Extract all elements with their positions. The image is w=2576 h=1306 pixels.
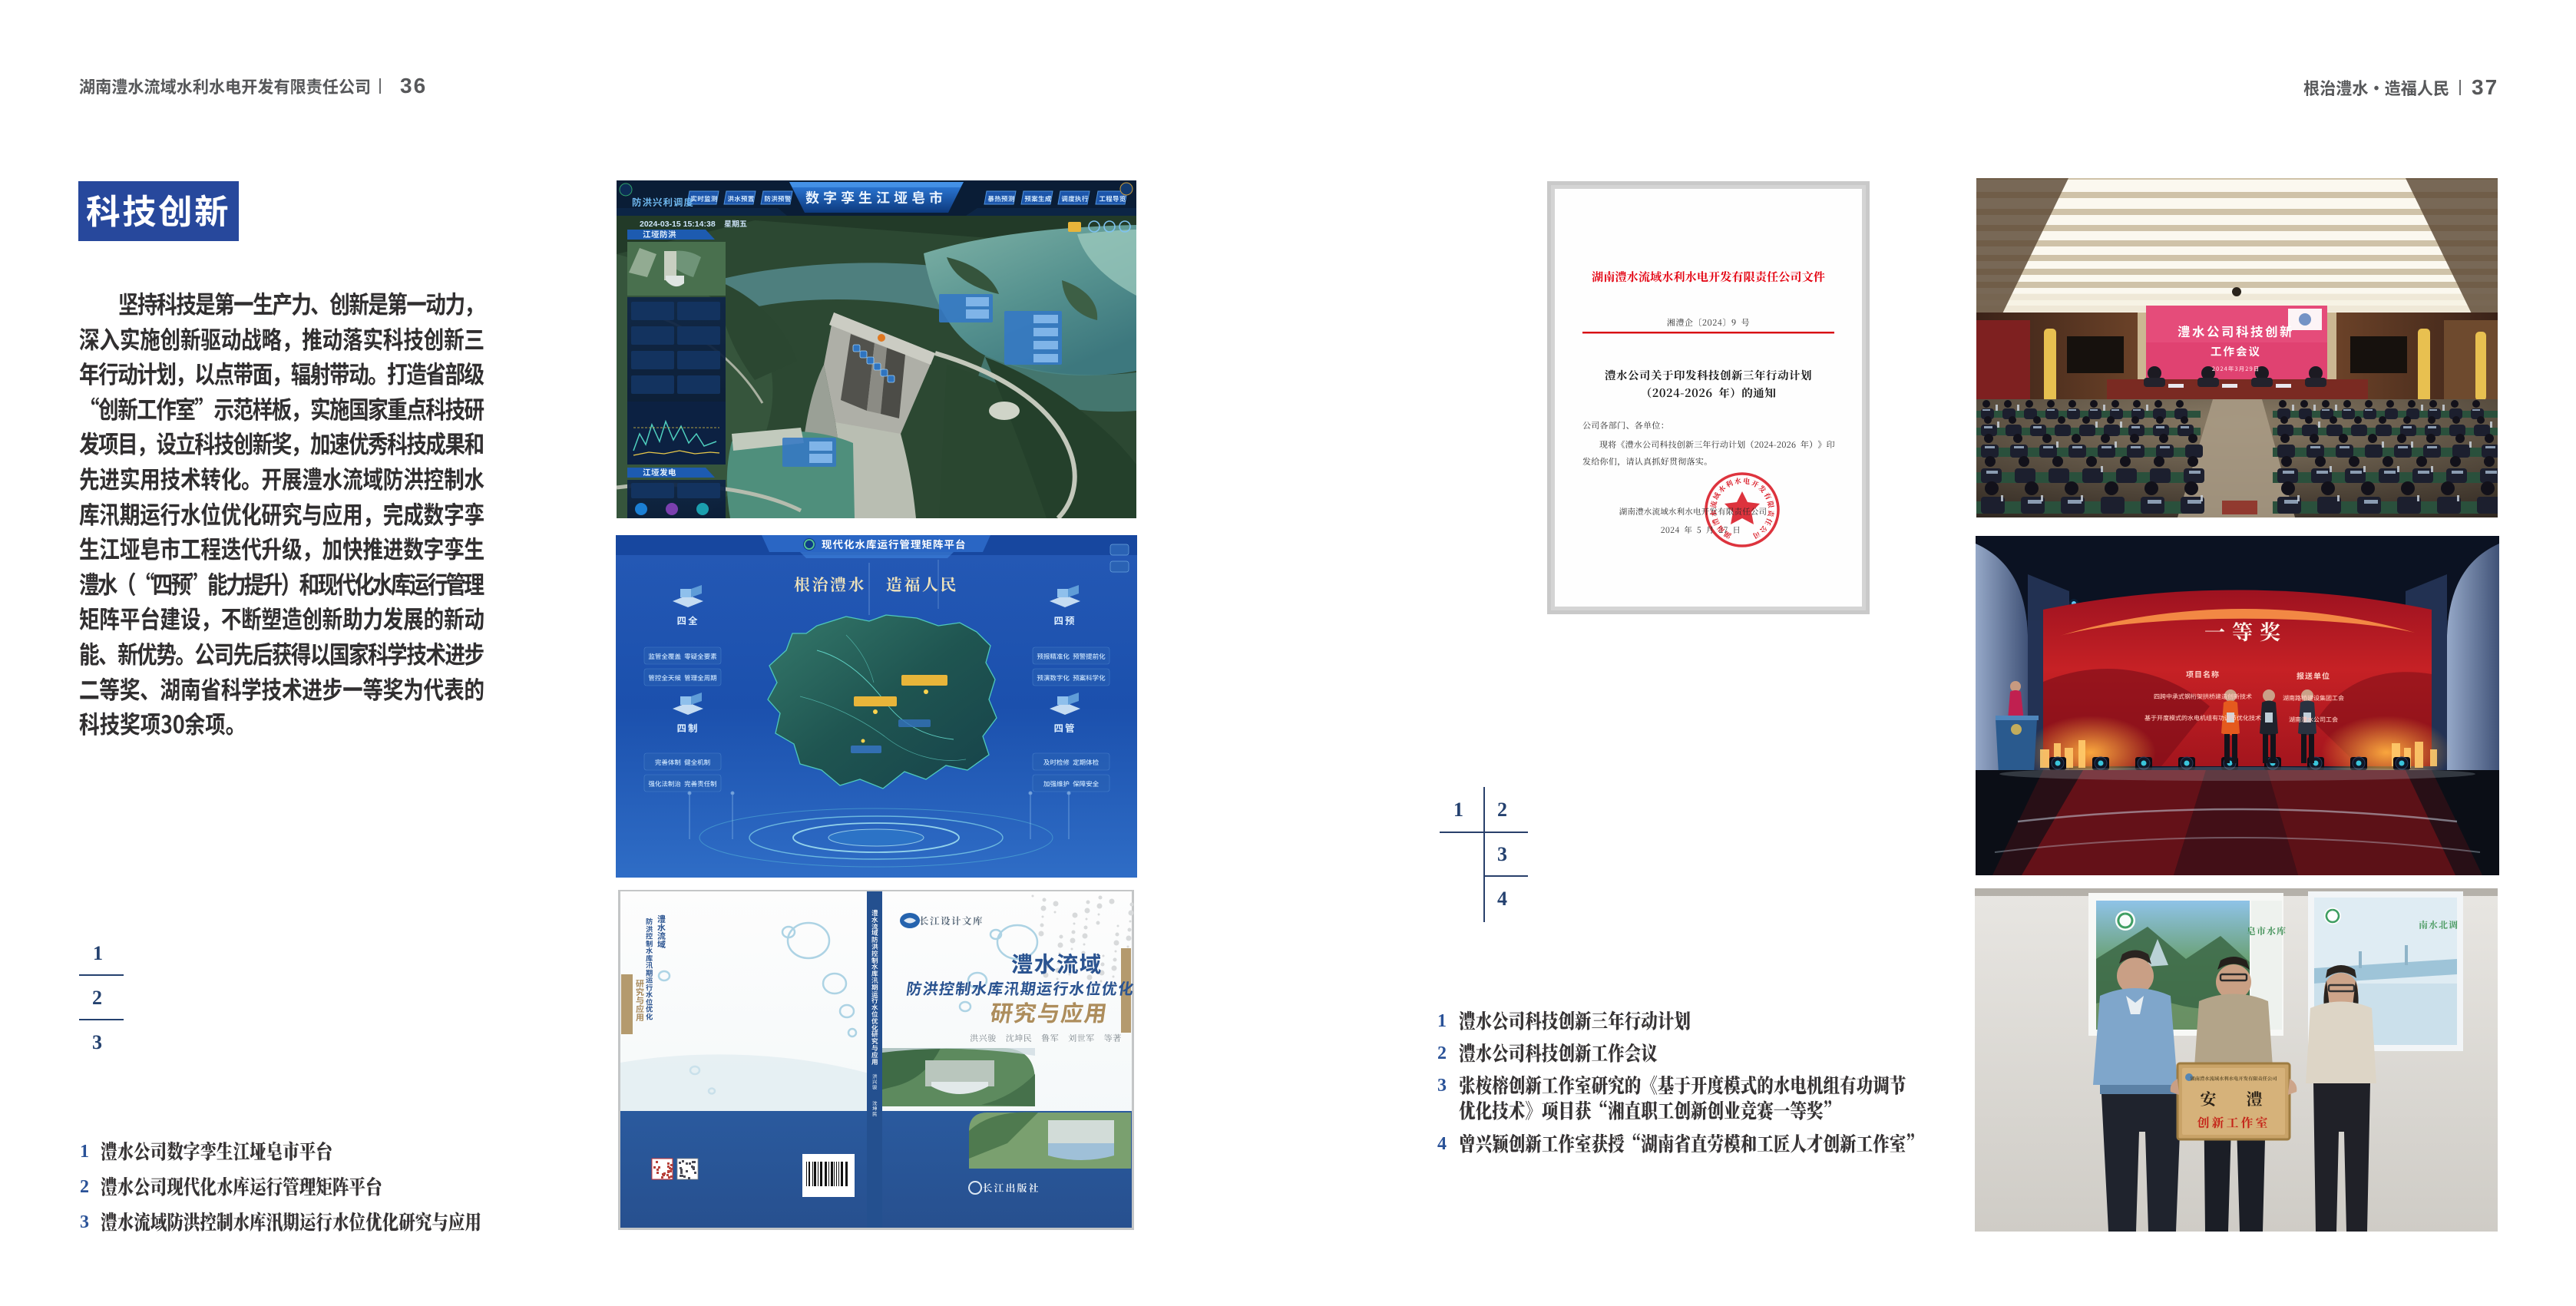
svg-text:2024-03-15 15:14:38: 2024-03-15 15:14:38 <box>640 220 716 229</box>
